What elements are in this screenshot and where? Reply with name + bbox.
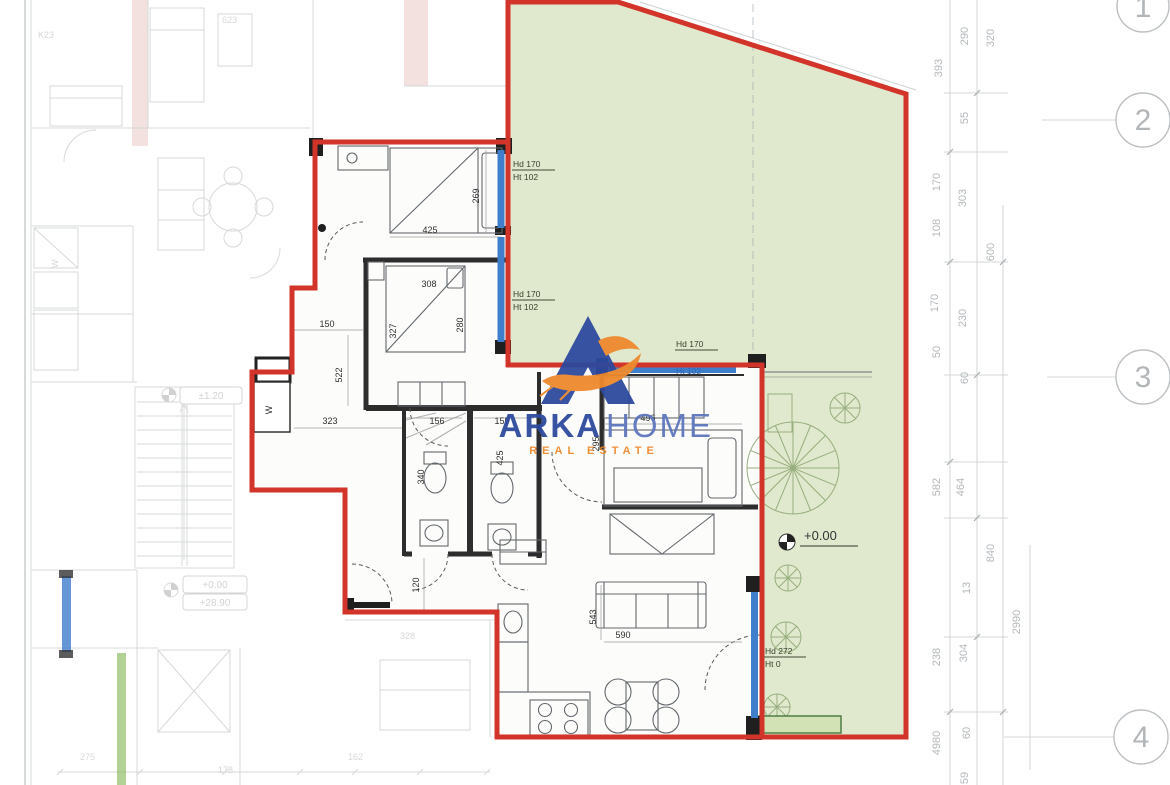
window-strip-bed1-lower (498, 237, 505, 342)
party-wall (132, 0, 148, 146)
right-dim-5: 108 (931, 219, 943, 237)
right-dim-0: 393 (933, 59, 945, 77)
bg-text-623: 623 (222, 15, 237, 25)
window-tag-4-line2: Ht 0 (765, 659, 781, 669)
right-dim-21: 59 (959, 772, 971, 784)
floor-plan-drawing: ±1.20 +0.00 +28.90 K23 623 328 (0, 0, 1170, 785)
bg-table (209, 183, 257, 231)
grid-bubble-2-label: 2 (1135, 104, 1152, 137)
logo-tagline: REAL ESTATE (529, 445, 659, 457)
stairs (135, 387, 234, 568)
dim-bath-340: 340 (416, 469, 426, 484)
right-dim-13: 464 (955, 478, 967, 496)
level-upper-label: ±1.20 (199, 391, 224, 402)
bg-text-178: 178 (218, 765, 233, 775)
level-tag-ground: +0.00 +28.90 (164, 576, 247, 610)
neighbor-window-strip (62, 576, 71, 652)
right-dim-15: 13 (961, 582, 973, 594)
bg-text-k23: K23 (38, 30, 54, 40)
bg-sofa (50, 86, 122, 126)
planter (757, 716, 841, 733)
elevator (158, 650, 230, 732)
floor-plan-page: ±1.20 +0.00 +28.90 K23 623 328 (0, 0, 1170, 785)
grid-bubble-3-label: 3 (1135, 361, 1152, 394)
dim-bed1-width: 425 (422, 225, 437, 235)
closet-label: W (264, 405, 274, 414)
green-edge-strip (117, 653, 126, 785)
window-strip-living (751, 592, 758, 718)
entry-door-leaf (352, 602, 390, 608)
wordmark-home: HOME (606, 407, 713, 444)
dim-hall-120: 120 (411, 577, 421, 592)
right-dim-14: 840 (985, 544, 997, 562)
right-dim-19: 4980 (931, 731, 943, 755)
dim-bed2-left: 327 (388, 323, 398, 338)
window-tag-2-line2: Ht 102 (513, 302, 538, 312)
right-dim-11: 60 (959, 372, 971, 384)
dim-bed1-height: 269 (471, 188, 481, 203)
level-ground-label: +0.00 (202, 580, 228, 591)
right-dim-7: 600 (985, 243, 997, 261)
right-dim-10: 50 (931, 346, 943, 358)
bg-text-328: 328 (400, 631, 415, 641)
neighbor-window-cap-bottom (59, 650, 73, 658)
level-absolute-label: +28.90 (200, 598, 231, 609)
wordmark-arka: ARKA (499, 407, 602, 444)
dim-living-590: 590 (615, 630, 630, 640)
bg-text-162: 162 (348, 752, 363, 762)
dim-bed2-right: 280 (455, 317, 465, 332)
level-tag-upper: ±1.20 (162, 387, 242, 404)
grid-bubble-4-label: 4 (1133, 721, 1150, 754)
closet-w: W (254, 358, 290, 432)
bg-cabinet (158, 158, 204, 250)
dim-bath-425: 425 (495, 450, 505, 465)
neighbor-window-cap-top (59, 570, 73, 578)
right-dim-8: 170 (929, 294, 941, 312)
window-tag-3-line1: Hd 170 (676, 339, 704, 349)
dim-hall-150: 150 (319, 319, 334, 329)
bg-bed (150, 8, 204, 102)
dim-living-543: 543 (588, 609, 598, 624)
window-tag-1-line2: Ht 102 (513, 172, 538, 182)
bg-text-275: 275 (80, 752, 95, 762)
dim-hall-323: 323 (322, 416, 337, 426)
bg-closet-label: W (50, 259, 60, 268)
window-strip-bed1-upper (498, 150, 505, 228)
right-dim-17: 238 (931, 648, 943, 666)
tree-small-2 (775, 565, 801, 591)
right-dim-12: 582 (931, 478, 943, 496)
garden-level-label: +0.00 (804, 528, 837, 543)
right-dim-4: 170 (931, 173, 943, 191)
window-tag-1-line1: Hd 170 (513, 159, 541, 169)
right-dim-6: 303 (957, 189, 969, 207)
right-dim-16: 2990 (1011, 610, 1023, 634)
dim-hall-522: 522 (334, 367, 344, 382)
right-dim-20: 60 (961, 727, 973, 739)
window-tag-4-line1: Hd 272 (765, 646, 793, 656)
right-dim-3: 55 (959, 112, 971, 124)
right-dim-1: 290 (959, 27, 971, 45)
party-wall-2 (404, 0, 428, 86)
right-dimension-panel: 393 290 320 55 170 108 303 600 170 230 5… (929, 0, 1170, 785)
dim-bath-156: 156 (429, 416, 444, 426)
grid-bubble-1-label: 1 (1135, 0, 1152, 24)
right-dim-2: 320 (985, 29, 997, 47)
window-tag-3-line2: Ht 102 (676, 366, 701, 376)
right-dim-18: 304 (958, 644, 970, 662)
dim-bed2-width: 308 (421, 279, 436, 289)
right-dim-9: 230 (957, 309, 969, 327)
window-tag-2-line1: Hd 170 (513, 289, 541, 299)
tree-small-1 (830, 393, 860, 423)
